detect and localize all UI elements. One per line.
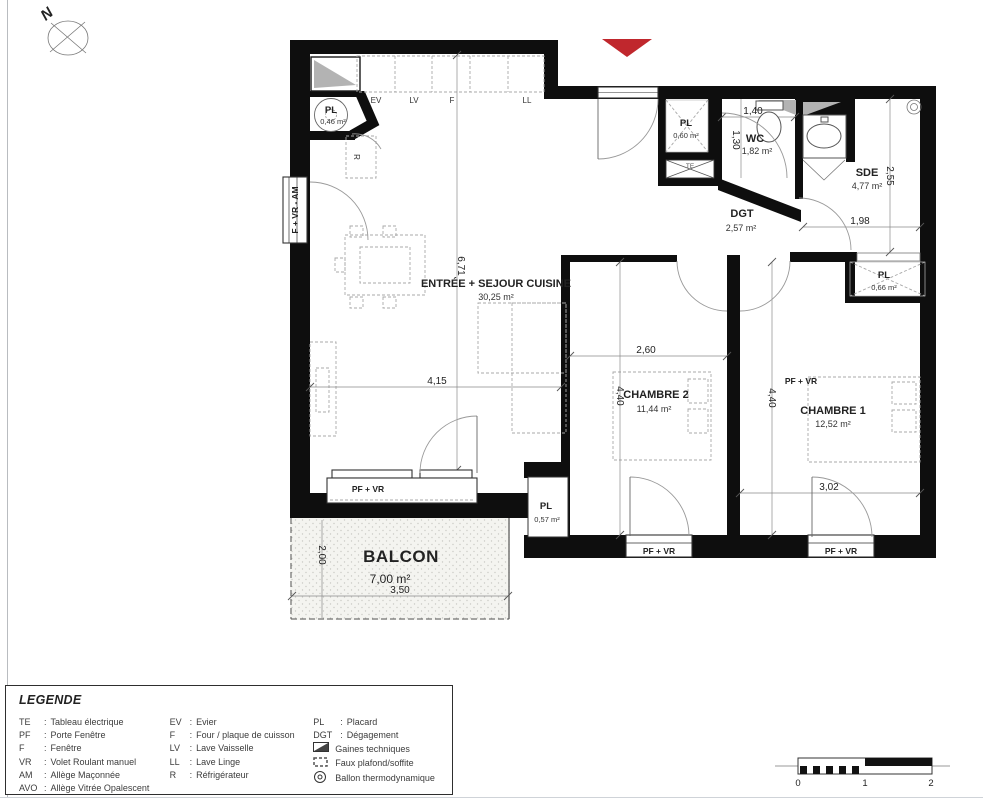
legend-abbr: VR bbox=[19, 756, 44, 769]
scale-1: 1 bbox=[862, 778, 867, 789]
dim-ch1-h: 4,40 bbox=[766, 388, 777, 408]
legend-label: Dégagement bbox=[347, 730, 399, 740]
dim-balcon-h: 2,00 bbox=[316, 545, 327, 565]
ballon-legend-icon bbox=[313, 771, 330, 787]
dim-sde-h: 2,55 bbox=[884, 166, 895, 186]
legend-panel: LEGENDE TE:Tableau électrique PF:Porte F… bbox=[5, 685, 453, 795]
closet-crosses bbox=[528, 100, 925, 537]
scale-2: 2 bbox=[928, 778, 933, 789]
dim-ch2-h: 4,40 bbox=[614, 386, 625, 406]
sejour-name: ENTRÉE + SEJOUR CUISINE bbox=[421, 277, 571, 290]
chambre1-window-note: PF + VR bbox=[785, 376, 817, 386]
scale-0: 0 bbox=[795, 778, 800, 789]
page-border-bottom bbox=[0, 797, 983, 798]
legend-label: Lave Linge bbox=[196, 757, 240, 767]
dim-sejour-h: 6,71 bbox=[455, 256, 466, 276]
ballon-thermodynamique-icon bbox=[907, 100, 921, 114]
te-label: TE bbox=[686, 163, 695, 170]
dim-wc-w: 1,40 bbox=[743, 106, 763, 117]
pl-chambre1-opening bbox=[857, 253, 920, 261]
legend-label: Fenêtre bbox=[51, 743, 82, 753]
legend-column-1: TE:Tableau électrique PF:Porte Fenêtre F… bbox=[19, 716, 170, 795]
kitchen-sink-label: EV bbox=[371, 96, 382, 105]
legend-title: LEGENDE bbox=[19, 693, 452, 707]
window-left-label: F + VR - AM bbox=[290, 186, 300, 233]
legend-abbr: PF bbox=[19, 729, 44, 742]
chambre1-name: CHAMBRE 1 bbox=[800, 405, 865, 417]
sejour-area: 30,25 m² bbox=[478, 292, 514, 302]
chambre1-area: 12,52 m² bbox=[815, 419, 851, 429]
dim-balcon-w: 3,50 bbox=[390, 585, 410, 596]
wc-name: WC bbox=[746, 133, 764, 145]
legend-abbr: AVO bbox=[19, 782, 44, 795]
kitchen-oven-label: F bbox=[450, 96, 455, 105]
pl-hall-area: 0,46 m² bbox=[320, 117, 346, 126]
legend-abbr: DGT bbox=[313, 729, 340, 742]
dim-sde-w: 1,98 bbox=[850, 216, 870, 227]
legend-abbr: LL bbox=[170, 756, 190, 769]
kitchen-dishwasher-label: LV bbox=[409, 96, 419, 105]
legend-label: Porte Fenêtre bbox=[51, 730, 106, 740]
chambre2-name: CHAMBRE 2 bbox=[623, 389, 688, 401]
legend-abbr: EV bbox=[170, 716, 190, 729]
compass-north-label: N bbox=[37, 3, 57, 24]
legend-label: Allège Vitrée Opalescent bbox=[51, 783, 150, 793]
pl-sejour-name: PL bbox=[540, 501, 552, 512]
floorplan-canvas: N bbox=[0, 0, 983, 800]
dim-ch2-w: 2,60 bbox=[636, 345, 656, 356]
legend-label: Four / plaque de cuisson bbox=[196, 730, 295, 740]
legend-column-2: EV:Evier F:Four / plaque de cuisson LV:L… bbox=[170, 716, 314, 795]
compass-rose: N bbox=[37, 3, 88, 55]
wc-area: 1,82 m² bbox=[742, 146, 773, 156]
kitchen-fridge-label: R bbox=[352, 154, 361, 160]
sde-name: SDE bbox=[856, 167, 879, 179]
page-border-left bbox=[7, 0, 8, 797]
legend-column-3: PL:Placard DGT:Dégagement Gaines techniq… bbox=[313, 716, 452, 795]
gaines-techniques-icon bbox=[313, 742, 330, 756]
dim-wc-h: 1,30 bbox=[730, 130, 741, 150]
scale-bar: 0 1 2 bbox=[775, 758, 950, 789]
pl-sejour-area: 0,57 m² bbox=[534, 515, 560, 524]
dim-ch1-w: 3,02 bbox=[819, 482, 839, 493]
legend-label: Ballon thermodynamique bbox=[335, 772, 435, 785]
pl-chambre1-name: PL bbox=[878, 270, 890, 281]
entrance-marker-icon bbox=[602, 39, 652, 57]
legend-label: Lave Vaisselle bbox=[196, 743, 253, 753]
legend-label: Tableau électrique bbox=[51, 717, 124, 727]
window-sejour-label: PF + VR bbox=[352, 484, 384, 494]
legend-abbr: LV bbox=[170, 742, 190, 755]
kitchen-washer-label: LL bbox=[523, 96, 532, 105]
dgt-name: DGT bbox=[730, 208, 754, 220]
pl-chambre1-area: 0,66 m² bbox=[871, 283, 897, 292]
balcon-area: 7,00 m² bbox=[370, 572, 411, 586]
pl-corridor-name: PL bbox=[680, 118, 692, 129]
legend-label: Placard bbox=[347, 717, 378, 727]
legend-abbr: TE bbox=[19, 716, 44, 729]
chambre2-area: 11,44 m² bbox=[637, 404, 672, 414]
dim-sejour-w: 4,15 bbox=[427, 376, 447, 387]
legend-label: Gaines techniques bbox=[335, 743, 410, 756]
pl-hall-name: PL bbox=[325, 105, 337, 116]
legend-label: Evier bbox=[196, 717, 217, 727]
window-ch2-label: PF + VR bbox=[643, 546, 675, 556]
legend-label: Réfrigérateur bbox=[196, 770, 249, 780]
legend-abbr: F bbox=[170, 729, 190, 742]
legend-abbr: R bbox=[170, 769, 190, 782]
balcony-area bbox=[290, 518, 510, 620]
sde-sink bbox=[803, 115, 846, 180]
legend-abbr: PL bbox=[313, 716, 340, 729]
pl-corridor-area: 0,60 m² bbox=[673, 131, 699, 140]
sde-area: 4,77 m² bbox=[852, 181, 883, 191]
window-ch1-label: PF + VR bbox=[825, 546, 857, 556]
legend-label: Faux plafond/soffite bbox=[335, 757, 413, 770]
legend-abbr: AM bbox=[19, 769, 44, 782]
legend-label: Volet Roulant manuel bbox=[51, 757, 137, 767]
legend-label: Allège Maçonnée bbox=[51, 770, 121, 780]
dgt-area: 2,57 m² bbox=[726, 223, 757, 233]
balcon-name: BALCON bbox=[363, 547, 439, 566]
kitchen-labels: EV LV F LL R TE bbox=[352, 96, 695, 170]
legend-abbr: F bbox=[19, 742, 44, 755]
faux-plafond-icon bbox=[313, 757, 330, 771]
